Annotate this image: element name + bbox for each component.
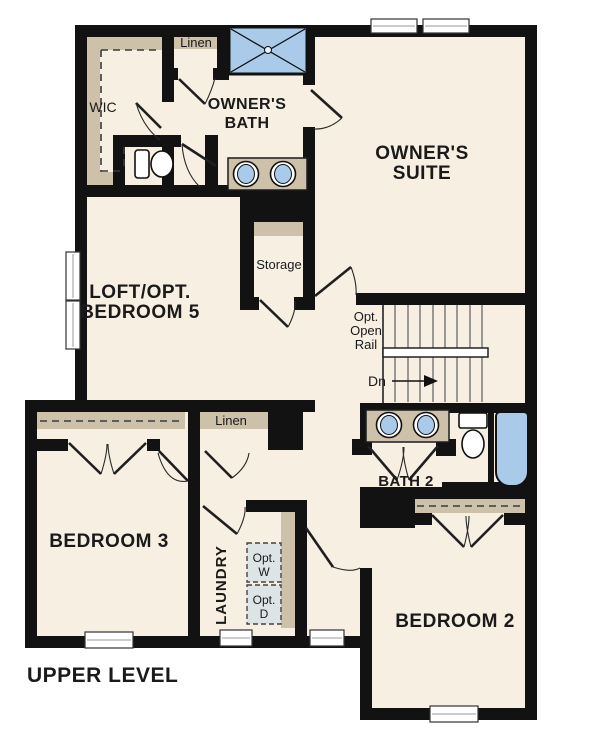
- stair-rail: [383, 348, 488, 357]
- room-label-linen-hall: Linen: [215, 413, 247, 428]
- window: [66, 301, 80, 349]
- room-label-loft-1: LOFT/OPT.: [89, 282, 191, 303]
- bathtub: [496, 412, 528, 486]
- owners-vanity: [228, 158, 307, 190]
- room-label-owners-bath-1: OWNER'S: [208, 96, 287, 113]
- bath2-vanity: [366, 410, 449, 442]
- window: [85, 632, 133, 648]
- room-label-laundry: LAUNDRY: [213, 545, 230, 625]
- room-label-loft-2: BEDROOM 5: [80, 302, 200, 323]
- window: [371, 19, 417, 33]
- floor-plan-page: WIC Linen OWNER'S BATH OWNER'S SUITE LOF…: [0, 0, 607, 744]
- label-opt-open-rail-3: Rail: [355, 337, 378, 352]
- room-label-wic: WIC: [89, 99, 116, 115]
- laundry-counter: [281, 512, 295, 628]
- label-opt-washer-2: W: [258, 565, 270, 579]
- room-label-owners-suite-2: SUITE: [393, 163, 451, 184]
- label-opt-dryer-2: D: [260, 607, 269, 621]
- room-label-linen-upper: Linen: [180, 35, 212, 50]
- label-opt-dryer-1: Opt.: [253, 593, 276, 607]
- label-opt-open-rail-1: Opt.: [354, 309, 379, 324]
- room-label-storage: Storage: [256, 257, 302, 272]
- window: [220, 630, 252, 646]
- label-down: Dn: [368, 373, 386, 389]
- floor-plan-drawing: WIC Linen OWNER'S BATH OWNER'S SUITE LOF…: [0, 0, 607, 744]
- label-opt-washer-1: Opt.: [253, 551, 276, 565]
- window: [310, 630, 344, 646]
- room-label-bedroom3: BEDROOM 3: [49, 531, 169, 552]
- window: [66, 252, 80, 300]
- room-label-owners-suite-1: OWNER'S: [375, 143, 469, 164]
- owners-toilet: [135, 150, 173, 178]
- room-label-bath2: BATH 2: [378, 473, 433, 490]
- storage-shelf: [254, 222, 303, 236]
- room-label-owners-bath-2: BATH: [225, 115, 270, 132]
- wic-shelf-top: [100, 37, 162, 50]
- plan-title: UPPER LEVEL: [27, 664, 178, 687]
- room-label-bedroom2: BEDROOM 2: [395, 611, 515, 632]
- label-opt-open-rail-2: Open: [350, 323, 382, 338]
- window: [423, 19, 469, 33]
- window: [430, 706, 478, 722]
- shower: [229, 27, 307, 74]
